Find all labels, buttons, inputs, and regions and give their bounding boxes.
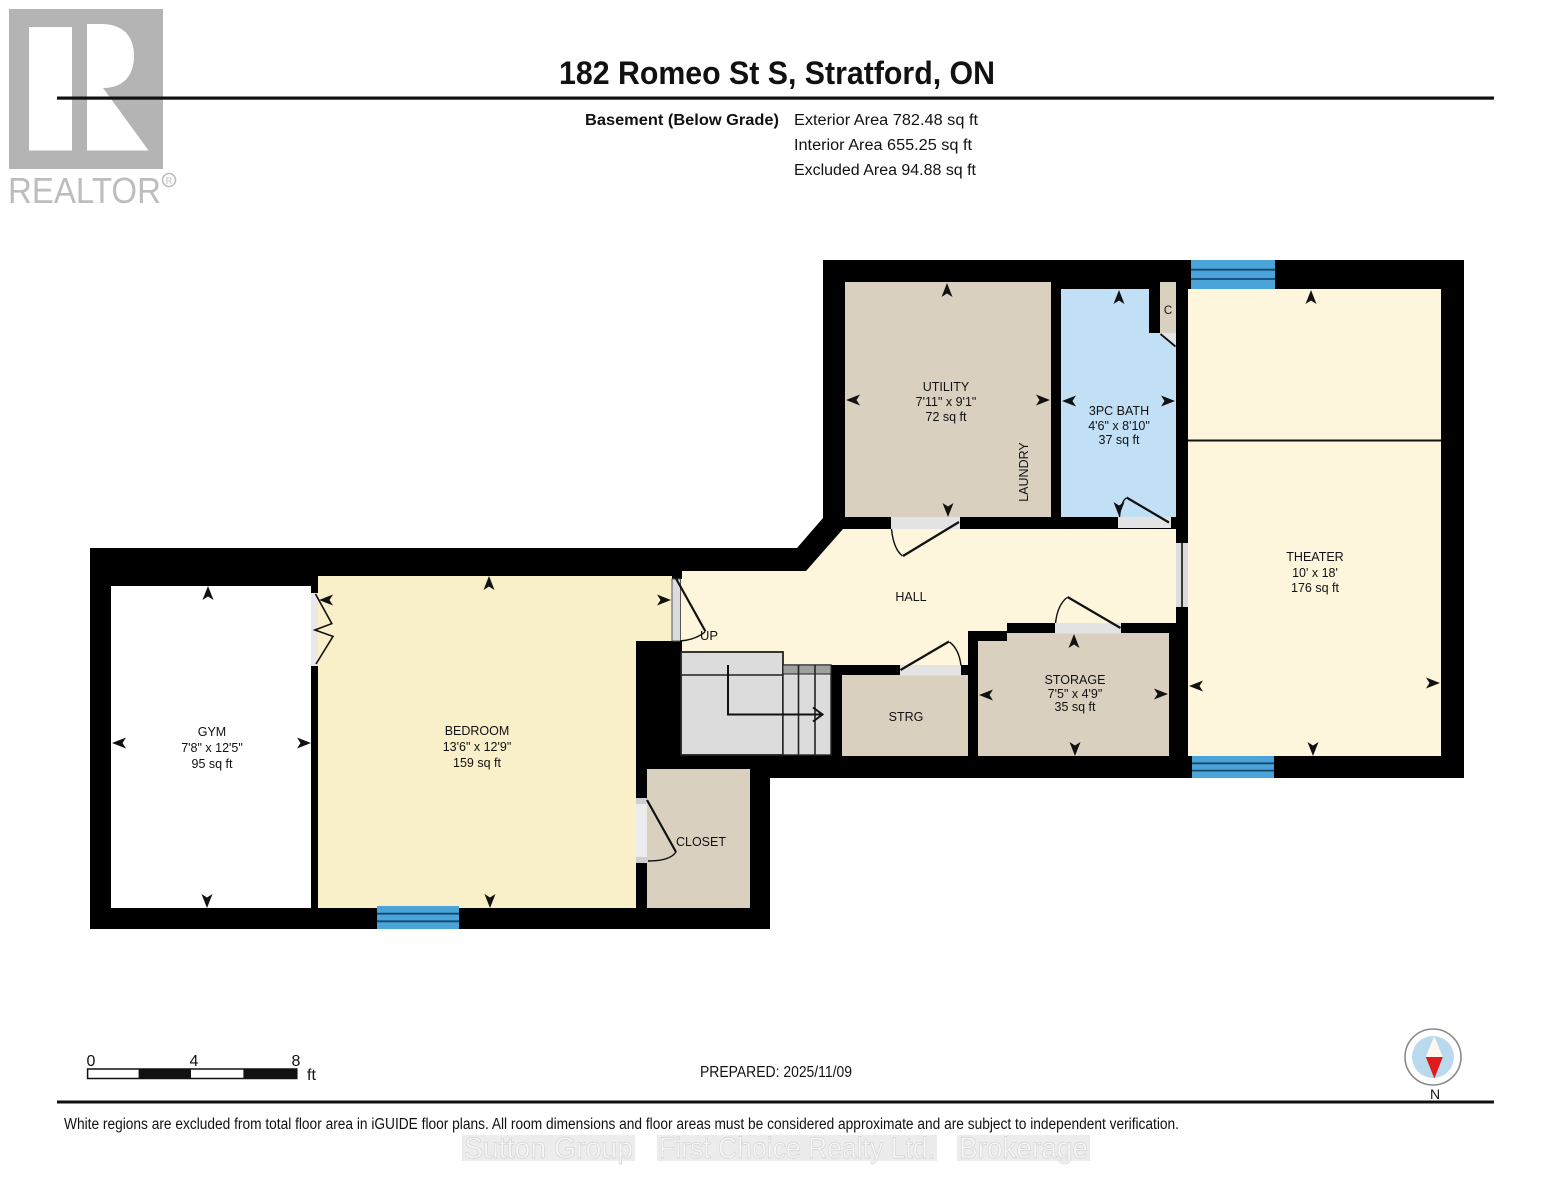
svg-text:THEATER: THEATER (1286, 550, 1343, 564)
svg-text:C: C (1164, 305, 1172, 317)
svg-text:Exterior Area 782.48 sq ft: Exterior Area 782.48 sq ft (794, 112, 979, 129)
svg-text:159 sq ft: 159 sq ft (453, 756, 501, 770)
svg-text:35 sq ft: 35 sq ft (1055, 700, 1097, 714)
svg-text:7'8" x 12'5": 7'8" x 12'5" (181, 741, 243, 755)
svg-text:White regions are excluded fro: White regions are excluded from total fl… (64, 1116, 1179, 1133)
svg-text:10' x 18': 10' x 18' (1292, 566, 1338, 580)
svg-text:0: 0 (87, 1053, 96, 1070)
svg-text:REALTOR: REALTOR (8, 170, 161, 211)
svg-text:Interior Area 655.25 sq ft: Interior Area 655.25 sq ft (794, 137, 973, 154)
svg-text:95 sq ft: 95 sq ft (192, 757, 234, 771)
svg-text:LAUNDRY: LAUNDRY (1017, 442, 1031, 502)
svg-text:37 sq ft: 37 sq ft (1099, 433, 1141, 447)
svg-text:STRG: STRG (889, 710, 924, 724)
svg-text:R: R (166, 176, 173, 186)
svg-text:182 Romeo St S, Stratford, ON: 182 Romeo St S, Stratford, ON (559, 55, 995, 91)
svg-text:CLOSET: CLOSET (676, 835, 726, 849)
svg-text:HALL: HALL (895, 590, 926, 604)
svg-text:72 sq ft: 72 sq ft (926, 410, 968, 424)
svg-text:STORAGE: STORAGE (1045, 673, 1106, 687)
svg-text:8: 8 (292, 1053, 301, 1070)
svg-text:ft: ft (307, 1067, 316, 1084)
svg-text:7'5" x 4'9": 7'5" x 4'9" (1048, 687, 1103, 701)
svg-text:Excluded Area 94.88 sq ft: Excluded Area 94.88 sq ft (794, 162, 977, 179)
svg-text:UTILITY: UTILITY (923, 380, 970, 394)
svg-text:176 sq ft: 176 sq ft (1291, 581, 1339, 595)
svg-text:UP: UP (700, 628, 718, 643)
svg-text:First Choice Realty Ltd.: First Choice Realty Ltd. (659, 1132, 935, 1165)
svg-text:4'6" x 8'10": 4'6" x 8'10" (1088, 419, 1150, 433)
svg-text:Sutton Group: Sutton Group (464, 1132, 633, 1165)
svg-text:PREPARED: 2025/11/09: PREPARED: 2025/11/09 (700, 1064, 852, 1081)
svg-text:4: 4 (190, 1053, 199, 1070)
svg-text:N: N (1430, 1086, 1440, 1102)
svg-text:3PC BATH: 3PC BATH (1089, 404, 1149, 418)
svg-text:Brokerage: Brokerage (959, 1132, 1088, 1165)
svg-text:7'11" x 9'1": 7'11" x 9'1" (916, 395, 977, 409)
svg-text:GYM: GYM (198, 725, 226, 739)
svg-text:Basement (Below Grade): Basement (Below Grade) (585, 112, 779, 129)
svg-text:13'6" x 12'9": 13'6" x 12'9" (443, 740, 512, 754)
svg-text:BEDROOM: BEDROOM (445, 724, 510, 738)
